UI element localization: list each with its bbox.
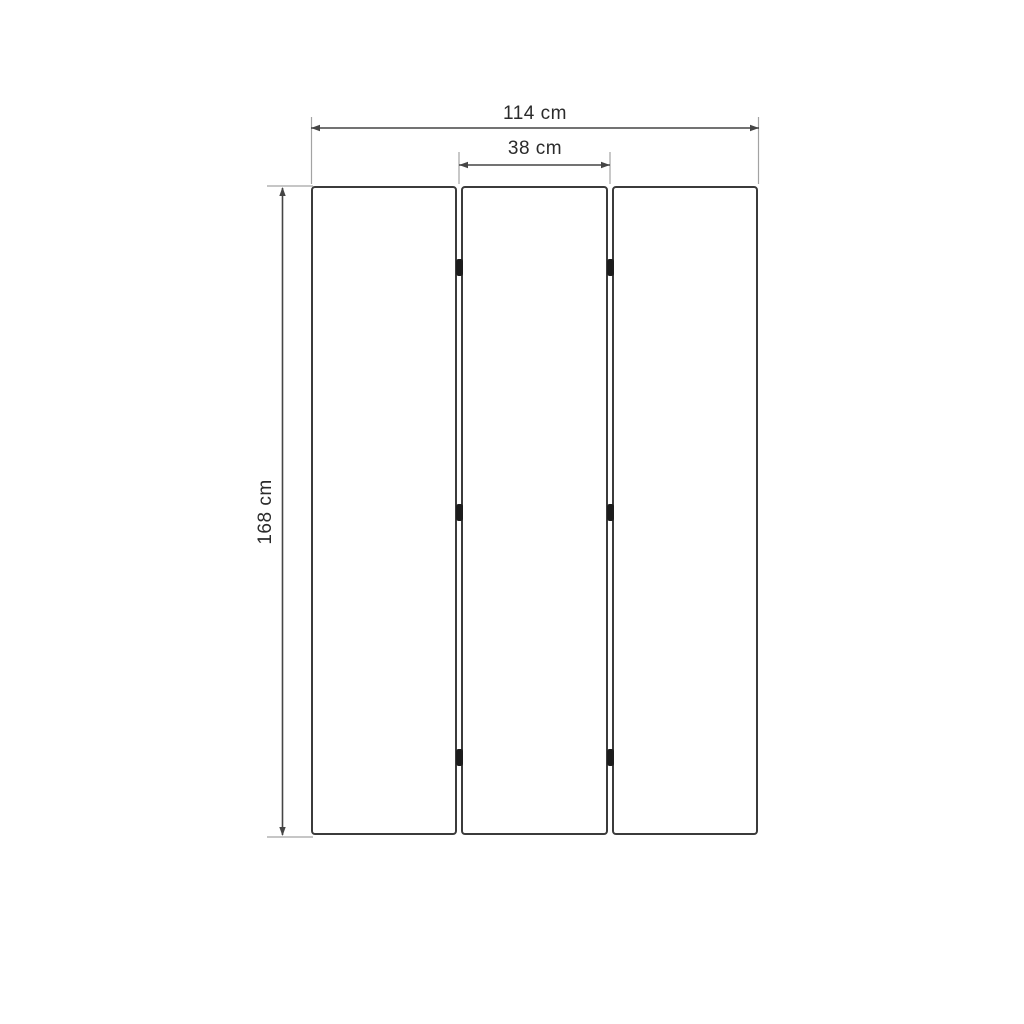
total-width-label: 114 cm (503, 103, 567, 125)
panel-left (311, 186, 457, 835)
arrowhead-right-icon (750, 125, 759, 131)
hinge-icon (607, 259, 614, 276)
arrowhead-down-icon (279, 827, 285, 836)
arrowhead-up-icon (279, 187, 285, 196)
hinge-icon (456, 259, 463, 276)
arrowhead-right-icon (601, 162, 610, 168)
hinge-icon (607, 749, 614, 766)
arrowhead-left-icon (459, 162, 468, 168)
hinge-icon (456, 504, 463, 521)
hinge-icon (456, 749, 463, 766)
panel-middle (461, 186, 608, 835)
dimension-drawing: 114 cm 38 cm 168 cm (0, 0, 1024, 1024)
height-label: 168 cm (255, 479, 277, 544)
arrowhead-left-icon (311, 125, 320, 131)
panel-right (612, 186, 758, 835)
panel-width-label: 38 cm (508, 138, 562, 160)
hinge-icon (607, 504, 614, 521)
